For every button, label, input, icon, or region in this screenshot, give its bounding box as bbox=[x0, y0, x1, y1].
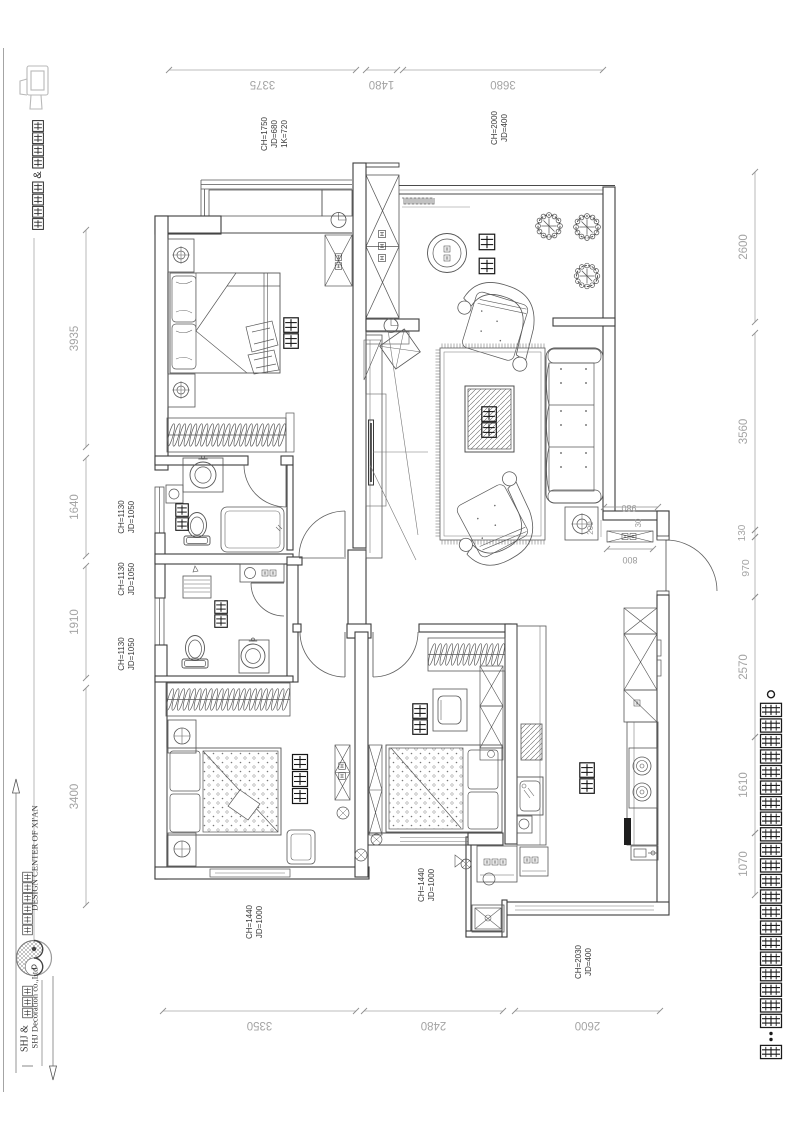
svg-text:2570: 2570 bbox=[738, 654, 750, 680]
svg-text:800: 800 bbox=[622, 555, 637, 565]
svg-text:1640: 1640 bbox=[69, 494, 81, 520]
svg-text:JD=680: JD=680 bbox=[270, 120, 279, 148]
svg-text:2600: 2600 bbox=[575, 1019, 601, 1031]
svg-text:3400: 3400 bbox=[69, 784, 81, 810]
svg-text:3935: 3935 bbox=[69, 326, 81, 352]
svg-text:SHJ Decoration co.,Ltd: SHJ Decoration co.,Ltd bbox=[30, 967, 40, 1049]
svg-text:3560: 3560 bbox=[738, 419, 750, 445]
svg-text:JD=400: JD=400 bbox=[584, 948, 593, 976]
svg-text:200: 200 bbox=[586, 521, 595, 535]
svg-text:2480: 2480 bbox=[421, 1019, 447, 1031]
svg-text:JD=1050: JD=1050 bbox=[127, 562, 136, 595]
svg-text:970: 970 bbox=[740, 559, 752, 577]
svg-text:DESIGN CENTER OF XI'AN: DESIGN CENTER OF XI'AN bbox=[30, 805, 40, 911]
svg-text:CH=1130: CH=1130 bbox=[117, 562, 126, 596]
svg-text:CH=1440: CH=1440 bbox=[417, 867, 426, 902]
svg-text:&: & bbox=[32, 171, 44, 179]
svg-text:3375: 3375 bbox=[250, 78, 276, 90]
svg-text:30: 30 bbox=[634, 518, 643, 527]
svg-text:CH=1130: CH=1130 bbox=[117, 637, 126, 671]
svg-text:CH=2030: CH=2030 bbox=[574, 944, 583, 979]
svg-text:1610: 1610 bbox=[738, 772, 750, 798]
svg-text:980: 980 bbox=[621, 503, 636, 513]
svg-text:1910: 1910 bbox=[69, 609, 81, 635]
svg-text:JD=1000: JD=1000 bbox=[255, 905, 264, 938]
svg-text:3680: 3680 bbox=[490, 78, 516, 90]
svg-text:JD=1050: JD=1050 bbox=[127, 500, 136, 533]
svg-text:1K=720: 1K=720 bbox=[280, 120, 289, 148]
svg-text:3350: 3350 bbox=[247, 1019, 273, 1031]
svg-text:CH=1130: CH=1130 bbox=[117, 500, 126, 534]
svg-text:JD=1000: JD=1000 bbox=[427, 868, 436, 901]
svg-text:CH=1750: CH=1750 bbox=[260, 116, 269, 151]
svg-text:CH=2000: CH=2000 bbox=[490, 110, 499, 145]
svg-text:JD=1050: JD=1050 bbox=[127, 637, 136, 670]
svg-text:JD=400: JD=400 bbox=[500, 114, 509, 142]
svg-text:CH=1440: CH=1440 bbox=[245, 904, 254, 939]
svg-text:130: 130 bbox=[737, 524, 748, 541]
svg-text:1070: 1070 bbox=[738, 851, 750, 877]
svg-text:1480: 1480 bbox=[369, 78, 395, 90]
svg-text:2600: 2600 bbox=[738, 234, 750, 260]
